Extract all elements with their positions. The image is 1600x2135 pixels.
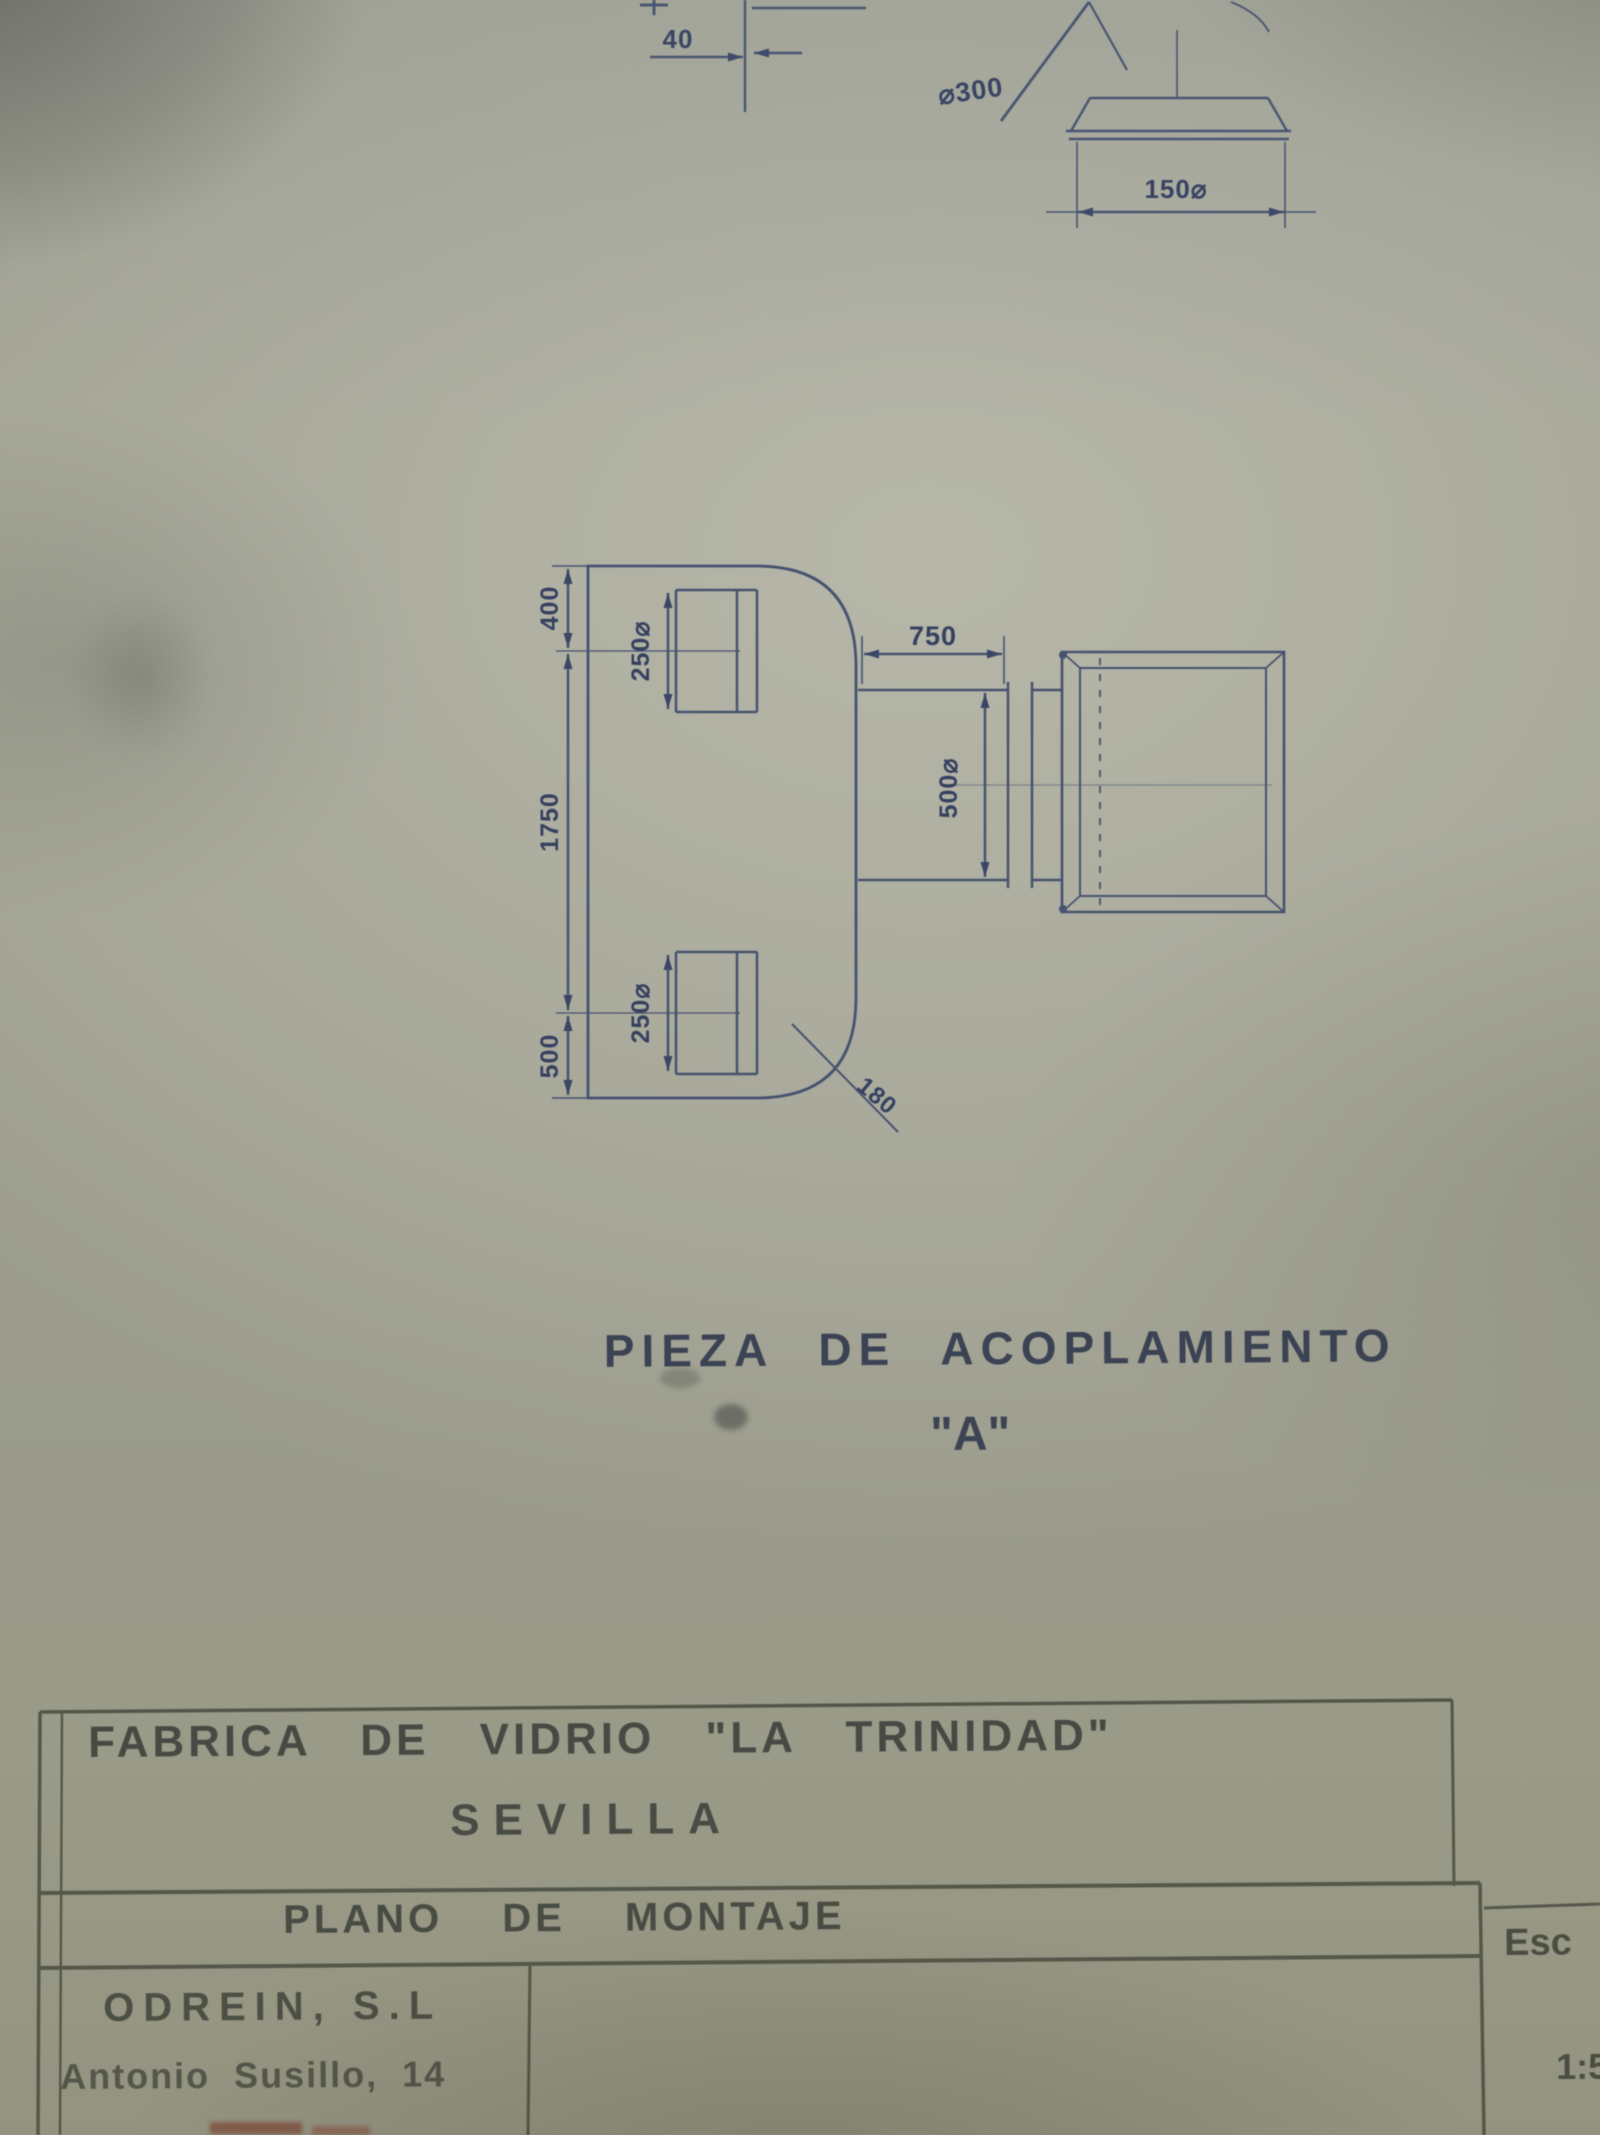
drawing-caption-variant: "A" (800, 1406, 1140, 1463)
drawing-linework: 40 ⌀300 150⌀ (0, 0, 1600, 2135)
drafting-firm-address: Antonio Susillo, 14 (60, 2053, 446, 2098)
dim-label-flange-top: 250⌀ (627, 621, 655, 682)
drawing-type: PLANO DE MONTAJE (283, 1894, 846, 1943)
main-view-dim-labels: 400 1750 500 250⌀ 250⌀ 750 500⌀ 180 (536, 586, 963, 1121)
dim-label-gap: 40 (663, 24, 694, 54)
dim-label-chamfer: 180 (852, 1072, 902, 1120)
company-name: FABRICA DE VIDRIO "LA TRINIDAD" (88, 1711, 1113, 1768)
flange-centerlines (556, 651, 740, 1013)
dim-label-flange-bottom: 250⌀ (627, 983, 655, 1044)
socket-outer (1062, 652, 1284, 912)
socket-inner (1080, 668, 1266, 896)
company-city: SEVILLA (450, 1794, 734, 1846)
drafting-firm: ODREIN, S.L (103, 1984, 442, 2031)
dim-label-neck-length: 750 (909, 621, 957, 651)
dim-label-cone-diameter: ⌀300 (936, 72, 1005, 111)
top-view-fragment (640, 0, 1316, 228)
dim-label-neck-diameter: 500⌀ (935, 758, 963, 819)
dim-label-left-mid: 1750 (536, 792, 564, 852)
drawing-sheet: 40 ⌀300 150⌀ (0, 0, 1600, 2135)
drawing-photo: 40 ⌀300 150⌀ (0, 0, 1600, 2135)
drawing-caption: PIEZA DE ACOPLAMIENTO (590, 1318, 1410, 1378)
dim-label-left-top: 400 (536, 586, 564, 631)
dim-label-base-diameter: 150⌀ (1144, 174, 1207, 204)
scale-value: 1:5 (1556, 2046, 1600, 2088)
dim-label-left-bottom: 500 (536, 1034, 564, 1079)
scale-label: Esc (1504, 1922, 1572, 1965)
